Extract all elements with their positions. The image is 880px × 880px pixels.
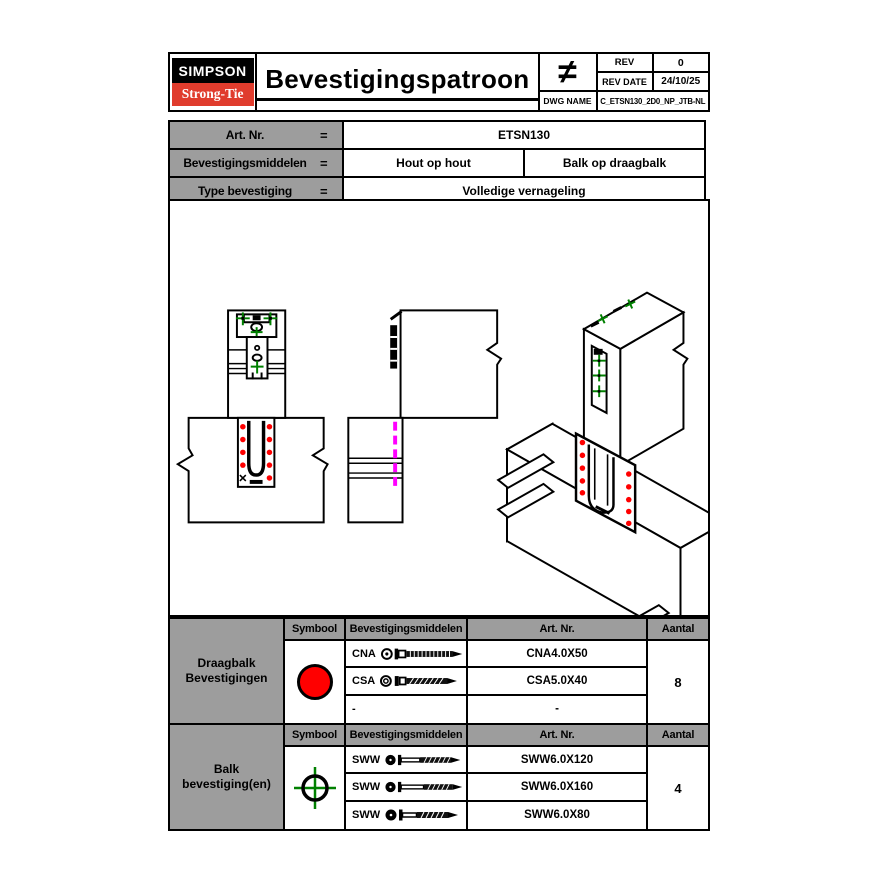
column-header: Bevestigingsmiddelen <box>344 725 466 747</box>
screw-icon <box>379 673 466 689</box>
column-header: Symbool <box>285 619 344 641</box>
long-screw-icon <box>384 807 464 823</box>
logo-strongtie-text: Strong-Tie <box>172 83 254 106</box>
fastener-cell: - <box>344 696 466 723</box>
red-circle-symbol-icon <box>297 664 333 700</box>
logo-cell: SIMPSON Strong-Tie <box>170 54 257 110</box>
fastener-cell: CSA <box>344 668 466 695</box>
art-nr-cell: SWW6.0X160 <box>466 774 646 801</box>
aantal-value: 4 <box>646 747 708 829</box>
info-value: ETSN130 <box>344 122 704 148</box>
info-label: Art. Nr. <box>170 128 320 142</box>
page-title: Bevestigingspatroon <box>257 64 537 101</box>
fastener-cell: CNA <box>344 641 466 668</box>
art-nr-cell: CSA5.0X40 <box>466 668 646 695</box>
drawing-sheet: SIMPSON Strong-Tie Bevestigingspatroon ≠… <box>168 52 710 831</box>
simpson-strongtie-logo: SIMPSON Strong-Tie <box>172 58 254 106</box>
dwg-name-label: DWG NAME <box>540 92 598 110</box>
revision-block: ≠ REV 0 REV DATE 24/10/25 DWG NAME C_ETS… <box>538 54 709 110</box>
info-label: Bevestigingsmiddelen <box>170 156 320 170</box>
green-crosshair-symbol-icon <box>292 765 338 811</box>
table-title: Draagbalk Bevestigingen <box>170 619 285 723</box>
side-view-drawing <box>348 310 501 522</box>
front-view-drawing <box>178 310 328 522</box>
column-header: Art. Nr. <box>466 619 646 641</box>
info-label: Type bevestiging <box>170 184 320 198</box>
symbol-cell <box>285 641 344 723</box>
rev-date-value: 24/10/25 <box>654 73 709 92</box>
equals-sign: = <box>320 184 342 199</box>
balk-fastener-table: Balk bevestiging(en) Symbool Bevestiging… <box>168 723 710 831</box>
rev-label: REV <box>598 54 654 73</box>
symbol-cell <box>285 747 344 829</box>
info-table: Art. Nr.= ETSN130 Bevestigingsmiddelen= … <box>168 120 706 194</box>
fastener-cell: SWW <box>344 747 466 774</box>
column-header: Bevestigingsmiddelen <box>344 619 466 641</box>
fastener-label: SWW <box>352 781 380 793</box>
column-header: Art. Nr. <box>466 725 646 747</box>
draagbalk-fastener-table: Draagbalk Bevestigingen Symbool Bevestig… <box>168 617 710 725</box>
not-equal-icon: ≠ <box>540 54 598 92</box>
art-nr-cell: CNA4.0X50 <box>466 641 646 668</box>
title-block: SIMPSON Strong-Tie Bevestigingspatroon ≠… <box>168 52 710 112</box>
art-nr-cell: SWW6.0X80 <box>466 802 646 829</box>
info-value: Hout op hout <box>344 150 523 176</box>
rev-date-label: REV DATE <box>598 73 654 92</box>
title-cell: Bevestigingspatroon <box>257 54 537 110</box>
long-screw-icon <box>384 752 466 768</box>
fastener-label: CNA <box>352 648 376 660</box>
fastener-cell: SWW <box>344 802 466 829</box>
fastener-label: CSA <box>352 675 375 687</box>
info-row-bevestigingsmiddelen: Bevestigingsmiddelen= Hout op hout Balk … <box>168 148 706 178</box>
long-screw-icon <box>384 779 466 795</box>
technical-drawings <box>170 201 708 615</box>
logo-simpson-text: SIMPSON <box>172 58 254 83</box>
table-title: Balk bevestiging(en) <box>170 725 285 829</box>
art-nr-cell: SWW6.0X120 <box>466 747 646 774</box>
fastener-label: - <box>352 703 356 715</box>
dwg-name-value: C_ETSN130_2D0_NP_JTB-NL <box>598 92 709 110</box>
equals-sign: = <box>320 128 342 143</box>
column-header: Aantal <box>646 725 708 747</box>
isometric-view-drawing <box>498 293 708 615</box>
art-nr-cell: - <box>466 696 646 723</box>
column-header: Symbool <box>285 725 344 747</box>
info-value: Balk op draagbalk <box>523 150 704 176</box>
aantal-value: 8 <box>646 641 708 723</box>
fastener-cell: SWW <box>344 774 466 801</box>
column-header: Aantal <box>646 619 708 641</box>
info-row-art-nr: Art. Nr.= ETSN130 <box>168 120 706 150</box>
equals-sign: = <box>320 156 342 171</box>
ring-nail-icon <box>380 646 466 662</box>
rev-value: 0 <box>654 54 709 73</box>
fastener-label: SWW <box>352 754 380 766</box>
drawing-area <box>168 199 710 617</box>
fastener-label: SWW <box>352 809 380 821</box>
